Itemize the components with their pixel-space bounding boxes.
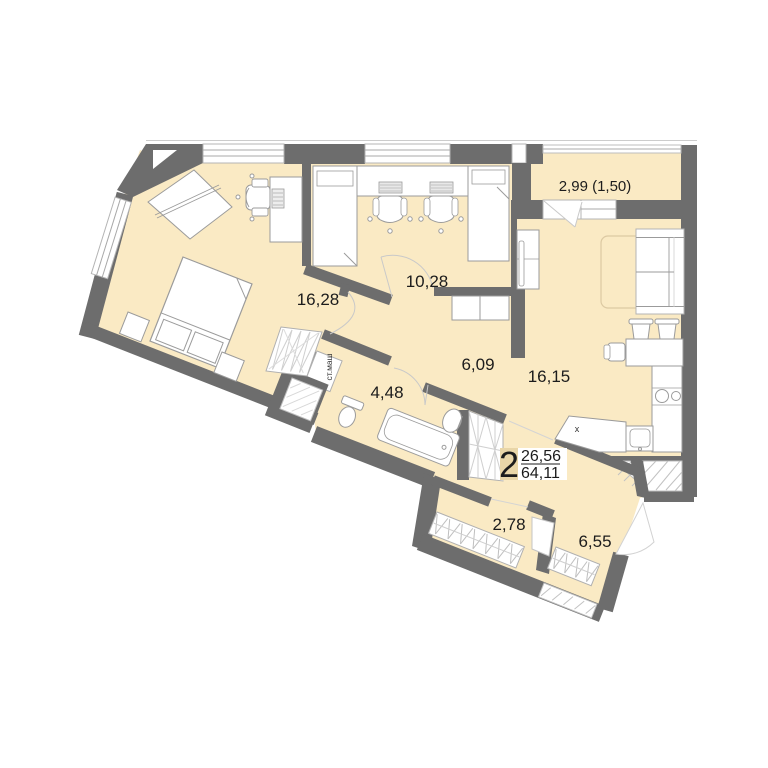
svg-text:16,15: 16,15 [528,367,571,386]
svg-text:26,56: 26,56 [521,448,561,465]
svg-text:10,28: 10,28 [406,272,449,291]
svg-text:х: х [575,424,580,434]
svg-text:6,55: 6,55 [578,532,611,551]
svg-text:64,11: 64,11 [521,465,560,482]
svg-text:ст.маш: ст.маш [324,353,334,380]
svg-text:6,09: 6,09 [461,355,494,374]
svg-text:16,28: 16,28 [297,290,340,309]
svg-text:2: 2 [499,444,519,485]
svg-text:4,48: 4,48 [370,383,403,402]
svg-text:2,78: 2,78 [492,515,525,534]
svg-text:2,99 (1,50): 2,99 (1,50) [559,178,632,195]
